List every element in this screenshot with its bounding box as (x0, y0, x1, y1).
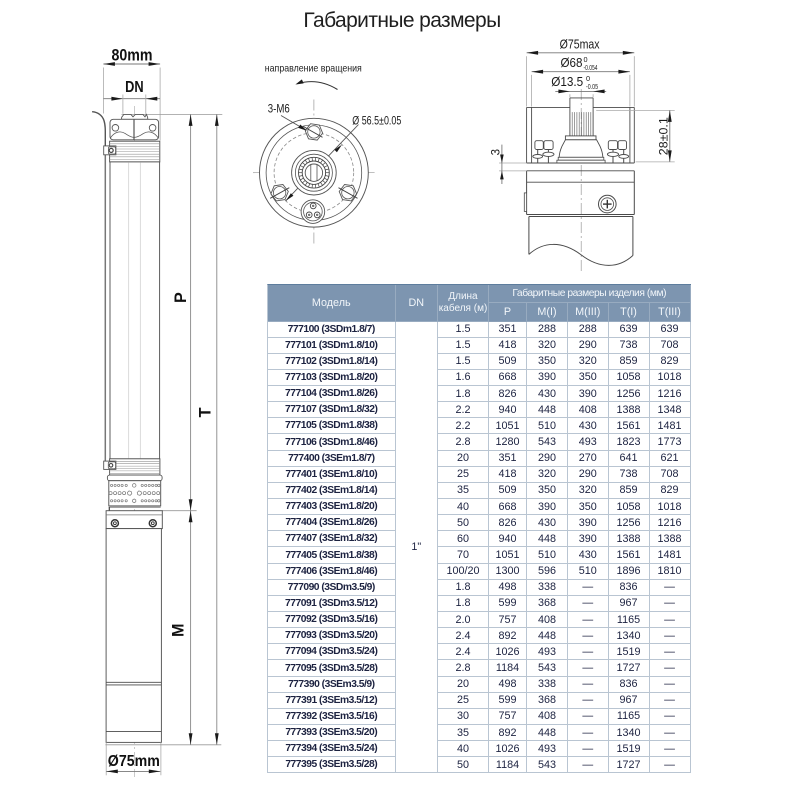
svg-text:3-М6: 3-М6 (268, 103, 290, 116)
svg-text:0: 0 (584, 55, 588, 64)
svg-text:Ø75mm: Ø75mm (108, 753, 160, 770)
svg-text:28±0.1: 28±0.1 (656, 117, 670, 155)
svg-text:направление вращения: направление вращения (265, 64, 362, 75)
svg-text:80mm: 80mm (112, 46, 153, 64)
svg-text:Ø 56.5±0.05: Ø 56.5±0.05 (352, 113, 401, 127)
svg-text:Ø68: Ø68 (561, 55, 583, 70)
svg-text:3: 3 (490, 149, 502, 155)
svg-text:M: M (169, 623, 187, 636)
svg-text:0: 0 (586, 74, 590, 83)
svg-text:DN: DN (125, 79, 144, 96)
svg-text:Ø13.5: Ø13.5 (551, 74, 583, 89)
svg-text:Ø75max: Ø75max (560, 37, 600, 52)
svg-text:-0.05: -0.05 (586, 84, 598, 91)
svg-text:P: P (172, 292, 190, 303)
svg-text:-0.054: -0.054 (584, 65, 598, 72)
svg-text:T: T (197, 407, 215, 417)
